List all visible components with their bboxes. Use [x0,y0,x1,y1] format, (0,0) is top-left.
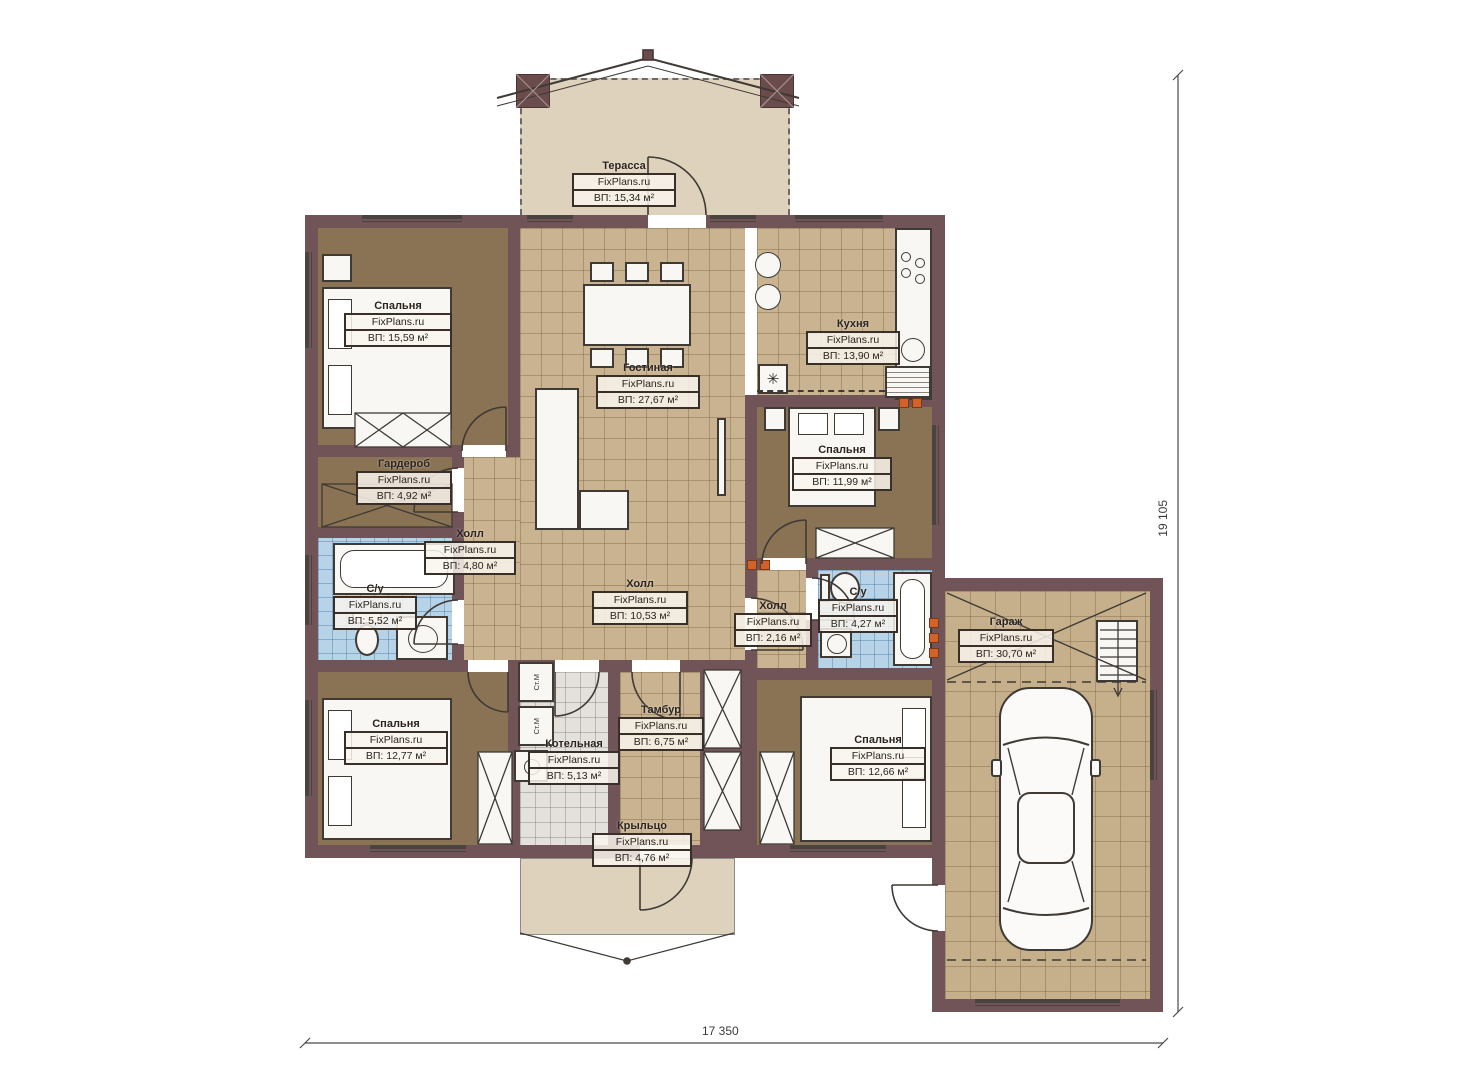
pillow [902,778,926,828]
wall-bedroom1-living [508,228,520,445]
room-label-living: Гостиная FixPlans.ruВП: 27,67 м² [596,362,700,409]
stove-burner [901,268,911,278]
room-name: Спальня [344,718,448,730]
vent-marker [760,560,770,570]
vent-marker [912,398,922,408]
room-area: ВП: 4,92 м² [358,489,450,503]
room-label-bedroom4: Спальня FixPlans.ruВП: 12,66 м² [830,734,926,781]
brand-watermark: FixPlans.ru [574,175,674,191]
brand-watermark: FixPlans.ru [820,601,896,617]
window-bedroom3-bottom [370,845,466,849]
brand-watermark: FixPlans.ru [594,835,690,851]
room-label-bath1: С/у FixPlans.ruВП: 5,52 м² [333,583,417,630]
vent-marker [899,398,909,408]
room-name: С/у [333,583,417,595]
room-area: ВП: 11,99 м² [794,475,890,489]
brand-watermark: FixPlans.ru [335,598,415,614]
room-name: Гардероб [356,458,452,470]
room-label-tambur: Тамбур FixPlans.ruВП: 6,75 м² [618,704,704,751]
room-label-porch: Крыльцо FixPlans.ruВП: 4,76 м² [592,820,692,867]
washing-machine-1: Ст.М [518,662,554,702]
room-label-terrace: Терасса FixPlans.ruВП: 15,34 м² [572,160,676,207]
brand-watermark: FixPlans.ru [426,543,514,559]
bar-stool [755,284,781,310]
wall-chase [700,660,745,858]
room-area: ВП: 13,90 м² [808,349,898,363]
stove-burner [901,252,911,262]
tv-unit [717,418,726,496]
terrace-post-right [760,74,794,108]
wall-right-main [932,215,945,858]
kitchen-sink [901,338,925,362]
room-area: ВП: 12,77 м² [346,749,446,763]
pillow [328,776,352,826]
washer-label: Ст.М [532,674,541,690]
room-name: Терасса [572,160,676,172]
brand-watermark: FixPlans.ru [832,749,924,765]
sofa-short [579,490,629,530]
room-area: ВП: 5,52 м² [335,614,415,628]
room-name: Спальня [344,300,452,312]
room-area: ВП: 15,59 м² [346,331,450,345]
room-area: ВП: 10,53 м² [594,609,686,623]
bathtub-2 [893,572,932,666]
brand-watermark: FixPlans.ru [594,593,686,609]
room-name: Холл [734,600,812,612]
room-area: ВП: 2,16 м² [736,631,810,645]
door-gap-boiler [555,660,599,672]
room-area: ВП: 4,27 м² [820,617,896,631]
room-label-bedroom2: Спальня FixPlans.ruВП: 11,99 м² [792,444,892,491]
room-name: Крыльцо [592,820,692,832]
window-bedroom2-right [932,425,936,525]
room-label-kitchen: Кухня FixPlans.ruВП: 13,90 м² [806,318,900,365]
window-living-left [527,215,573,219]
room-label-bedroom1: Спальня FixPlans.ruВП: 15,59 м² [344,300,452,347]
room-name: Холл [424,528,516,540]
room-name: Гостиная [596,362,700,374]
room-name: С/у [818,586,898,598]
pillow [798,413,828,435]
pillow [328,365,352,415]
window-bath1-left [305,555,309,625]
bathtub-basin [900,579,925,659]
wall-bedroom4-top [745,668,945,680]
floor-plan-canvas: ✳ Ст.М Ст.М [0,0,1473,1080]
room-name: Спальня [830,734,926,746]
room-area: ВП: 12,66 м² [832,765,924,779]
room-name: Тамбур [618,704,704,716]
room-label-bedroom3: Спальня FixPlans.ruВП: 12,77 м² [344,718,448,765]
brand-watermark: FixPlans.ru [620,719,702,735]
window-bedroom3-left [305,700,309,796]
door-gap-terrace [648,215,706,228]
nightstand [878,407,900,431]
stove-burner [915,274,925,284]
window-garage-right [1150,690,1154,780]
window-bedroom1-top [362,215,462,219]
chair [590,262,614,282]
room-area: ВП: 30,70 м² [960,647,1052,661]
dimension-height-label: 19 105 [1156,500,1170,537]
vent-marker [929,618,939,628]
sofa-long [535,388,579,530]
chair [660,262,684,282]
room-label-hall-main: Холл FixPlans.ruВП: 10,53 м² [592,578,688,625]
room-label-hall2: Холл FixPlans.ruВП: 2,16 м² [734,600,812,647]
brand-watermark: FixPlans.ru [736,615,810,631]
room-name: Котельная [528,738,620,750]
vent-marker [929,633,939,643]
wall-garage-top [932,578,1163,591]
door-gap-garage-side [932,885,945,931]
terrace-post-left [516,74,550,108]
door-gap-tambur [632,660,680,672]
room-label-wardrobe: Гардероб FixPlans.ruВП: 4,92 м² [356,458,452,505]
door-gap-bath1 [452,600,464,644]
nightstand [764,407,786,431]
wall-garage-right [1150,578,1163,1012]
window-living-right [710,215,756,219]
room-label-garage: Гараж FixPlans.ruВП: 30,70 м² [958,616,1054,663]
nightstand [322,254,352,282]
chair [625,262,649,282]
room-label-bath2: С/у FixPlans.ruВП: 4,27 м² [818,586,898,633]
stove-burner [915,258,925,268]
window-kitchen-top [795,215,883,219]
dining-table [583,284,691,346]
brand-watermark: FixPlans.ru [808,333,898,349]
room-area: ВП: 4,76 м² [594,851,690,865]
fridge-snowflake-icon: ✳ [758,364,788,394]
window-bedroom4-bottom [790,845,886,849]
room-area: ВП: 5,13 м² [530,769,618,783]
brand-watermark: FixPlans.ru [530,753,618,769]
door-gap-wardrobe [452,468,464,512]
room-area: ВП: 27,67 м² [598,393,698,407]
door-gap-bedroom3 [468,660,508,672]
porch-floor [520,858,735,935]
brand-watermark: FixPlans.ru [358,473,450,489]
window-bedroom1-left [305,252,309,348]
attic-ladder [1096,620,1138,682]
room-area: ВП: 6,75 м² [620,735,702,749]
dimension-width-label: 17 350 [702,1024,739,1038]
brand-watermark: FixPlans.ru [794,459,890,475]
room-label-boiler: Котельная FixPlans.ruВП: 5,13 м² [528,738,620,785]
washer-label: Ст.М [532,718,541,734]
room-name: Холл [592,578,688,590]
dishwasher [885,366,931,398]
room-area: ВП: 4,80 м² [426,559,514,573]
room-name: Гараж [958,616,1054,628]
pillow [834,413,864,435]
room-label-hall1: Холл FixPlans.ruВП: 4,80 м² [424,528,516,575]
sink-bowl [827,634,847,654]
brand-watermark: FixPlans.ru [346,315,450,331]
brand-watermark: FixPlans.ru [346,733,446,749]
garage-door-opening [975,999,1120,1003]
door-gap-bedroom1 [462,445,506,457]
brand-watermark: FixPlans.ru [960,631,1052,647]
room-area: ВП: 15,34 м² [574,191,674,205]
bar-stool [755,252,781,278]
vent-marker [929,648,939,658]
room-name: Кухня [806,318,900,330]
brand-watermark: FixPlans.ru [598,377,698,393]
vent-marker [747,560,757,570]
room-name: Спальня [792,444,892,456]
